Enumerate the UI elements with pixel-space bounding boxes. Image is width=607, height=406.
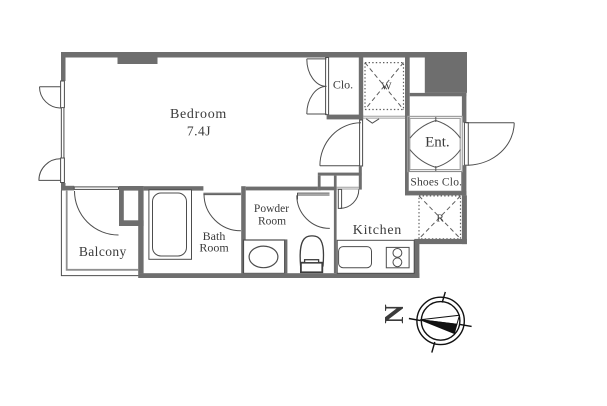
- svg-text:Ent.: Ent.: [425, 134, 450, 150]
- svg-text:Room: Room: [199, 241, 229, 255]
- svg-text:N: N: [379, 304, 409, 324]
- svg-text:W: W: [381, 80, 392, 92]
- svg-text:Bedroom: Bedroom: [170, 107, 227, 122]
- svg-text:Room: Room: [258, 215, 286, 227]
- svg-text:Kitchen: Kitchen: [353, 223, 402, 238]
- svg-text:R: R: [437, 212, 445, 224]
- svg-text:7.4J: 7.4J: [187, 124, 211, 139]
- svg-text:Balcony: Balcony: [79, 244, 127, 259]
- svg-text:Powder: Powder: [254, 203, 289, 215]
- svg-text:Shoes Clo.: Shoes Clo.: [410, 176, 462, 188]
- svg-text:Clo.: Clo.: [333, 78, 353, 92]
